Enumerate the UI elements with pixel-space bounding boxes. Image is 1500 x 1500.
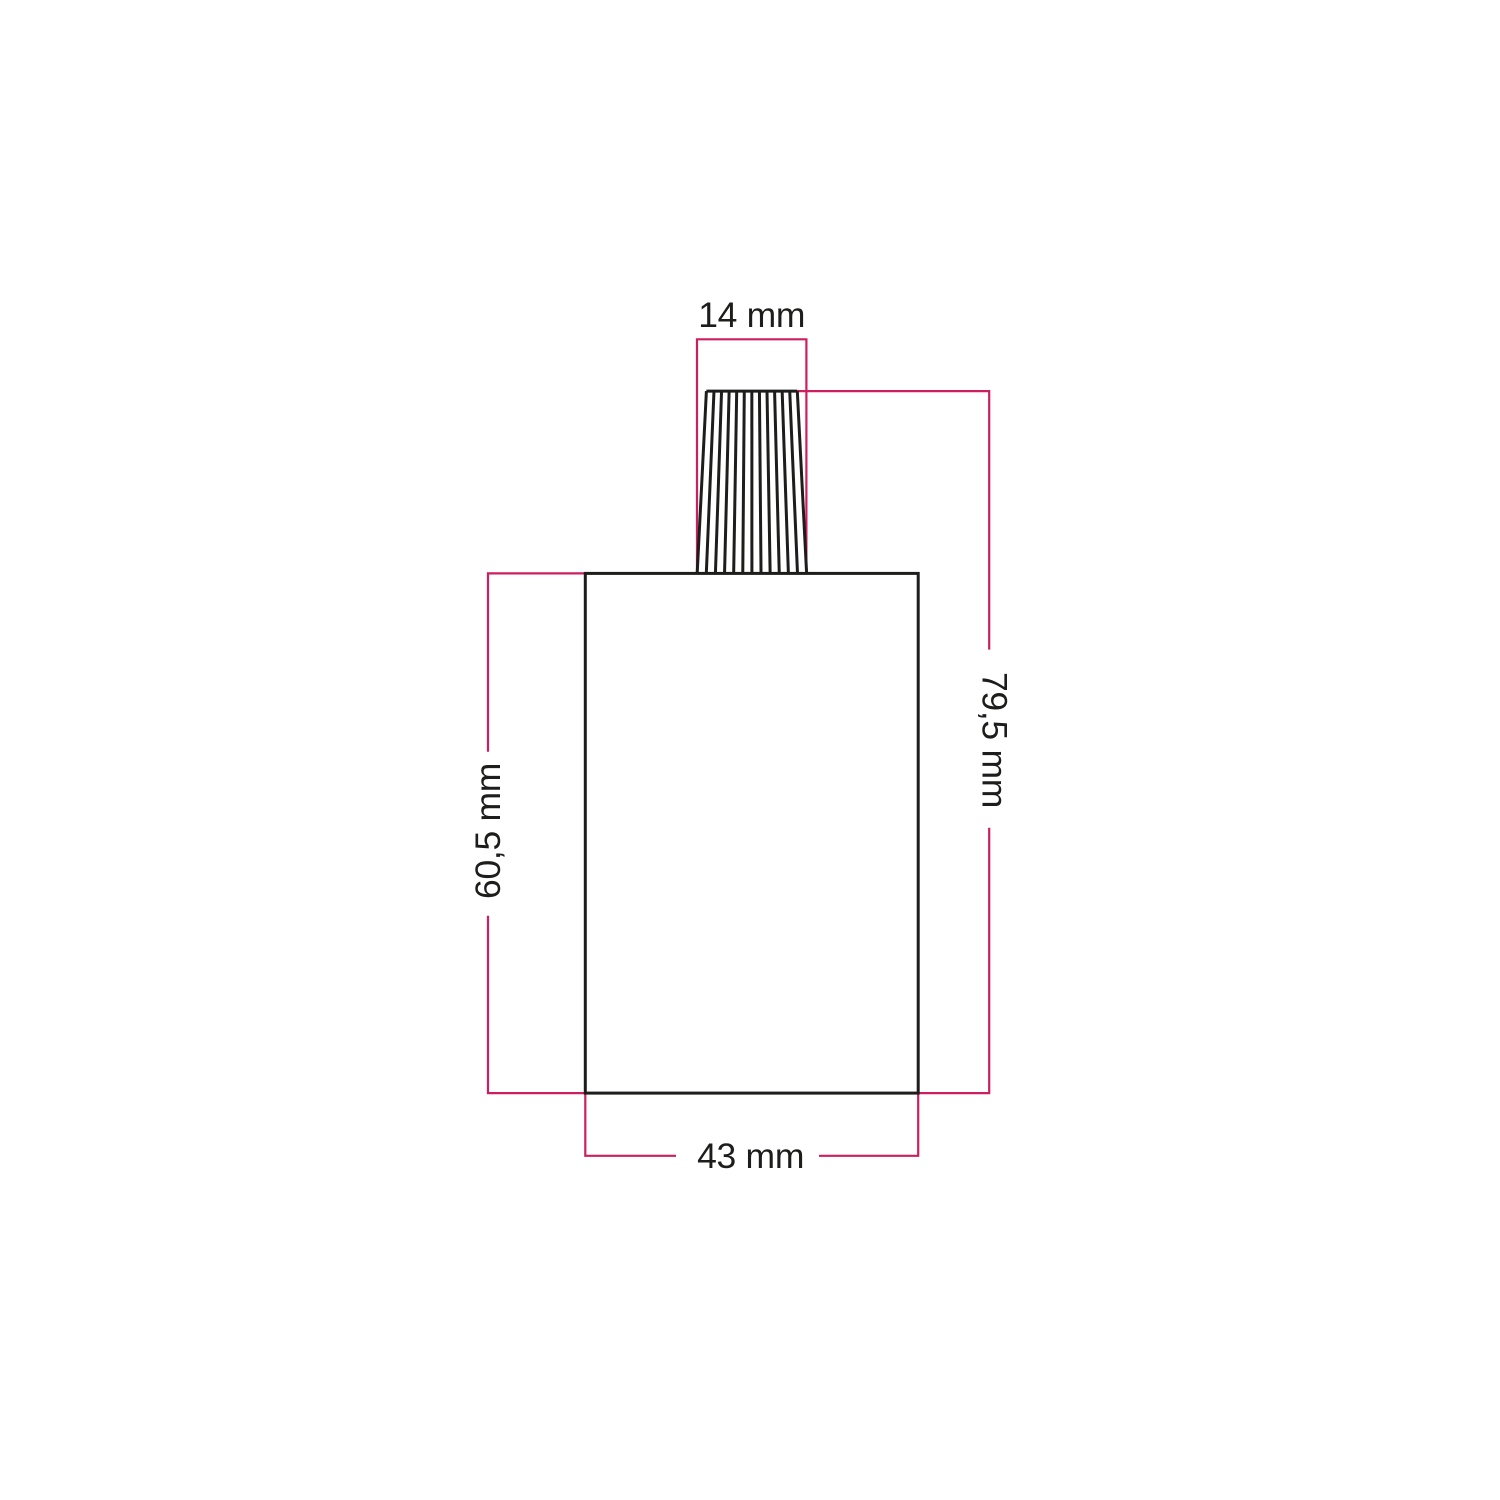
- svg-text:79,5 mm: 79,5 mm: [975, 672, 1015, 808]
- svg-text:43 mm: 43 mm: [697, 1136, 804, 1176]
- svg-text:14 mm: 14 mm: [698, 295, 805, 335]
- svg-text:60,5 mm: 60,5 mm: [468, 763, 508, 899]
